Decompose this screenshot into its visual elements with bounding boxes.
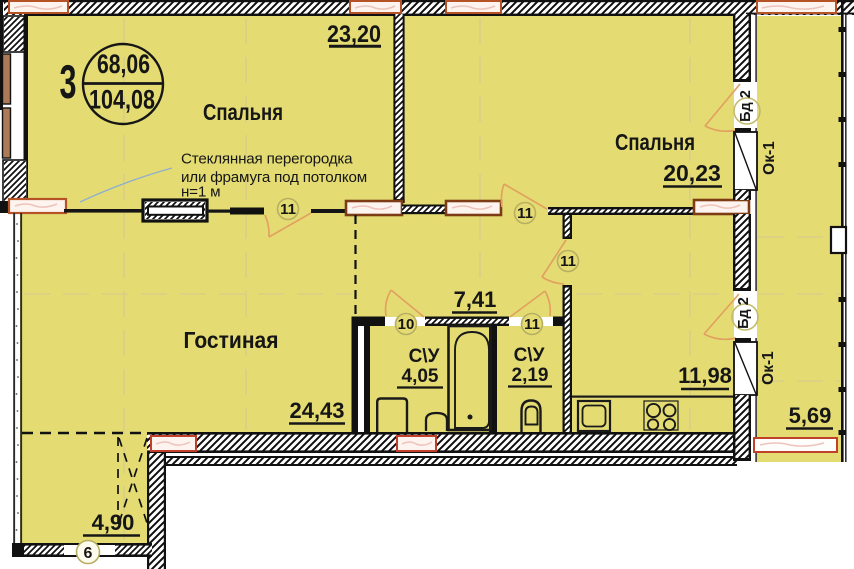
svg-text:Спальня: Спальня: [203, 99, 283, 125]
svg-text:23,20: 23,20: [327, 21, 381, 48]
svg-text:Ок-1: Ок-1: [760, 351, 777, 385]
svg-text:С\У: С\У: [409, 346, 440, 367]
svg-text:Бд 2: Бд 2: [736, 297, 752, 329]
svg-text:5,69: 5,69: [789, 403, 832, 428]
svg-text:Стеклянная перегородка: Стеклянная перегородка: [181, 151, 353, 168]
svg-text:3: 3: [60, 55, 77, 108]
svg-text:Спальня: Спальня: [615, 129, 695, 155]
svg-text:Гостиная: Гостиная: [184, 327, 279, 353]
svg-text:10: 10: [398, 316, 415, 333]
svg-text:11: 11: [524, 316, 540, 333]
svg-text:Бд 2: Бд 2: [738, 90, 754, 122]
svg-text:6: 6: [84, 545, 93, 562]
svg-text:11: 11: [517, 205, 533, 222]
svg-text:7,41: 7,41: [454, 287, 497, 312]
svg-text:68,06: 68,06: [97, 49, 150, 79]
svg-text:20,23: 20,23: [663, 160, 721, 186]
svg-text:Ок-1: Ок-1: [761, 141, 778, 175]
svg-text:11: 11: [280, 201, 296, 218]
svg-text:11: 11: [560, 253, 576, 270]
svg-text:104,08: 104,08: [89, 85, 155, 115]
svg-text:4,90: 4,90: [92, 510, 135, 535]
svg-text:2,19: 2,19: [512, 365, 549, 386]
svg-text:С\У: С\У: [514, 345, 545, 366]
svg-text:4,05: 4,05: [402, 366, 439, 387]
svg-text:н=1 м: н=1 м: [181, 184, 220, 201]
svg-text:11,98: 11,98: [678, 363, 732, 388]
svg-text:24,43: 24,43: [289, 398, 344, 423]
